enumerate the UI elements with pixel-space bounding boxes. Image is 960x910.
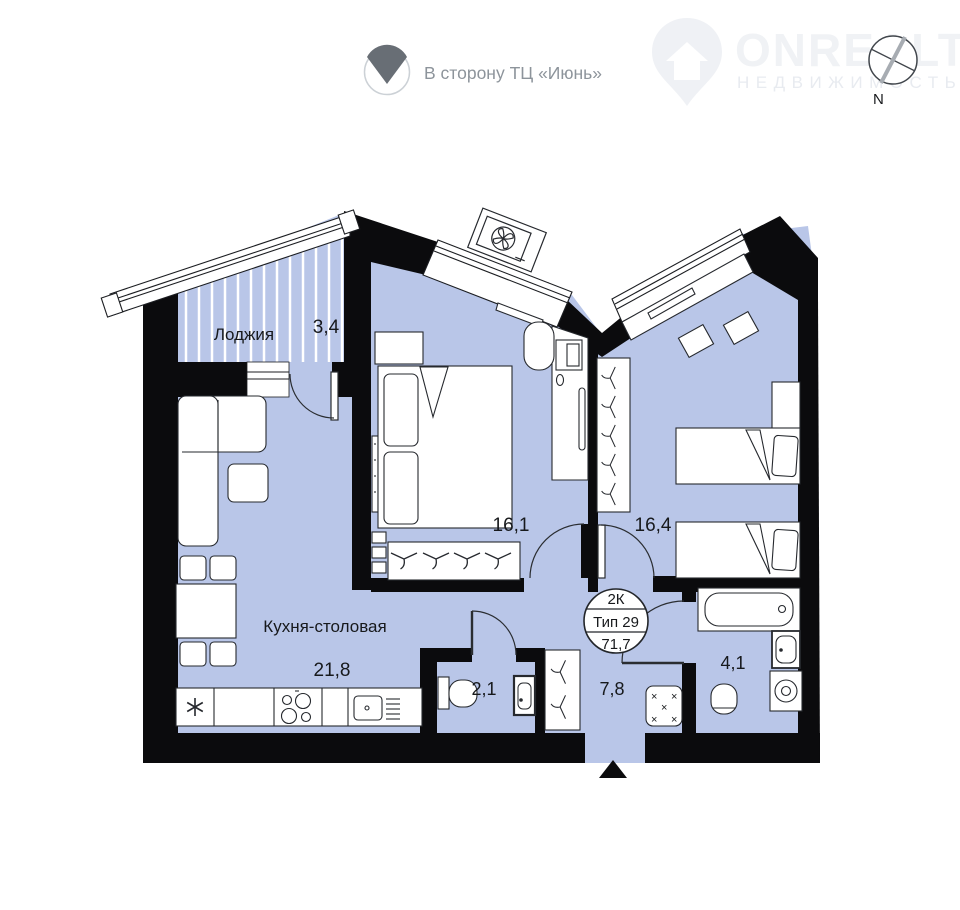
- desk-chair: [524, 322, 554, 370]
- entry-closet: [545, 650, 580, 730]
- label-loggia: Лоджия: [214, 325, 274, 344]
- svg-text:×: ×: [651, 714, 657, 726]
- wall-bottom-right: [645, 733, 820, 763]
- dining-chair: [180, 642, 206, 666]
- coffee-table: [228, 464, 268, 502]
- toilet: [711, 684, 737, 714]
- nightstand: [772, 382, 800, 430]
- label-kitchen: Кухня-столовая: [263, 617, 386, 636]
- kitchen-counter: [176, 688, 422, 726]
- balcony-window-unit: [247, 362, 289, 397]
- wardrobe-bedroom2: [597, 358, 630, 512]
- stamp-plan-type: Тип 29: [593, 614, 639, 631]
- dining-chair: [210, 556, 236, 580]
- washing-machine: [770, 671, 802, 711]
- logo-subtitle: НЕДВИЖИМОСТЬ: [737, 73, 960, 92]
- doormat: ×× × ××: [646, 686, 682, 726]
- area-bedroom2: 16,4: [635, 515, 672, 536]
- entrance-opening: [585, 733, 645, 763]
- svg-text:×: ×: [651, 691, 657, 703]
- monitor-screen: [567, 344, 579, 366]
- svg-text:×: ×: [671, 714, 677, 726]
- pillow: [384, 374, 418, 446]
- floorplan-svg: ONREALT НЕДВИЖИМОСТЬ В сторону ТЦ «Июнь»…: [0, 0, 960, 910]
- stamp-rooms-type: 2К: [607, 591, 624, 608]
- direction-indicator: В сторону ТЦ «Июнь»: [365, 45, 603, 95]
- area-bathroom: 4,1: [720, 653, 745, 673]
- pillow: [384, 452, 418, 524]
- area-kitchen: 21,8: [314, 660, 351, 681]
- bathroom-sink: [772, 631, 800, 668]
- floorplan-page: ONREALT НЕДВИЖИМОСТЬ В сторону ТЦ «Июнь»…: [0, 0, 960, 910]
- wall-shelf: [372, 532, 386, 573]
- compass-north-label: N: [873, 91, 884, 108]
- tv-on-wall: [372, 436, 378, 512]
- area-hallway: 7,8: [599, 679, 624, 699]
- dining-set: [176, 556, 236, 666]
- wall-kitchen-bedroom1: [352, 362, 371, 590]
- washbasin-cabinet: [514, 676, 535, 715]
- compass: N: [869, 36, 917, 108]
- svg-text:×: ×: [661, 702, 667, 714]
- dining-chair: [180, 556, 206, 580]
- area-wc: 2,1: [471, 679, 496, 699]
- wall-bathroom-left: [682, 663, 696, 733]
- dining-chair: [210, 642, 236, 666]
- pillow: [772, 435, 799, 477]
- desk-shelf: [579, 388, 585, 450]
- area-stamp: 2К Тип 29 71,7: [584, 589, 648, 653]
- pillow: [772, 529, 799, 571]
- dining-table: [176, 584, 236, 638]
- direction-label: В сторону ТЦ «Июнь»: [424, 63, 602, 83]
- computer-mouse: [557, 375, 564, 386]
- single-bed: [676, 522, 800, 578]
- nightstand: [375, 332, 423, 364]
- stamp-total-area: 71,7: [601, 636, 630, 653]
- area-bedroom1: 16,1: [493, 515, 530, 536]
- bathtub: [698, 588, 800, 631]
- area-loggia: 3,4: [313, 317, 340, 338]
- wall-bottom-left: [143, 733, 585, 763]
- single-bed: [676, 428, 800, 484]
- wall-loggia-bottom: [143, 362, 248, 397]
- logo-house-pin-icon: [652, 18, 722, 106]
- wardrobe-bedroom1: [388, 542, 520, 580]
- logo-title: ONREALT: [735, 24, 960, 76]
- wall-bathroom-left-stub: [682, 589, 696, 602]
- svg-text:×: ×: [671, 691, 677, 703]
- wall-wc-right: [535, 648, 545, 733]
